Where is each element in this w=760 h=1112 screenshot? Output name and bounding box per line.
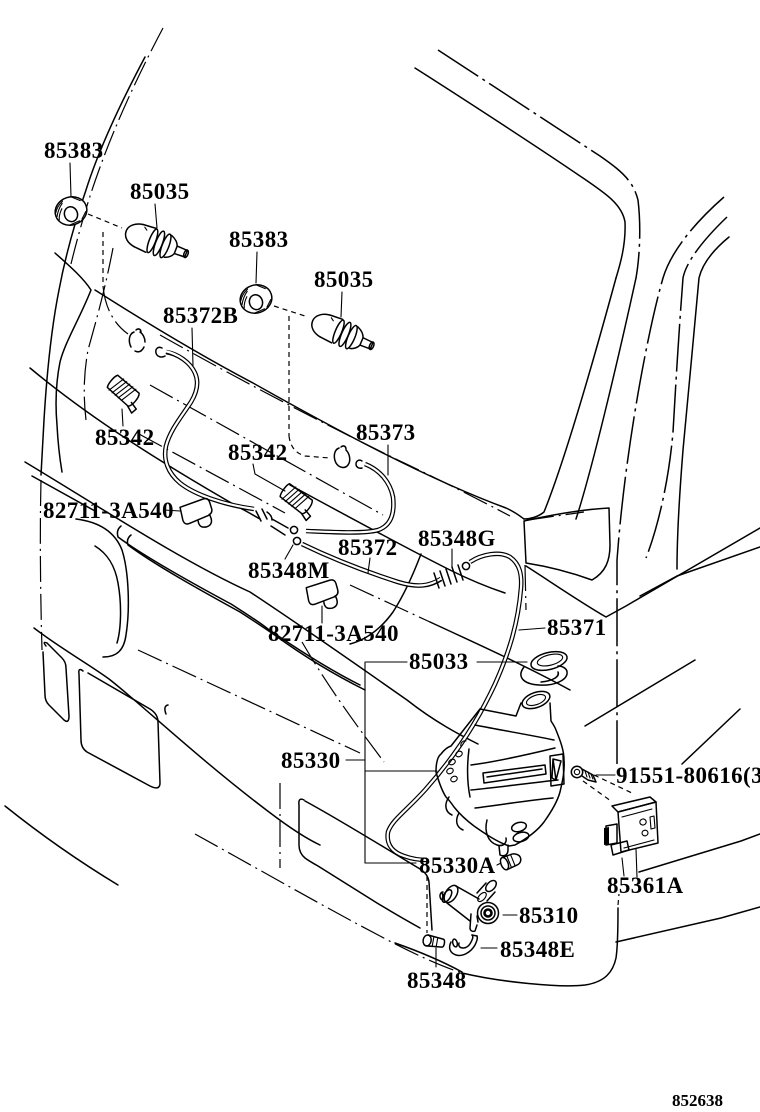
svg-text:91551-80616(3): 91551-80616(3) — [616, 763, 760, 788]
svg-text:85033: 85033 — [409, 649, 469, 674]
svg-text:85383: 85383 — [229, 227, 289, 252]
svg-text:85348: 85348 — [407, 968, 467, 993]
svg-text:85373: 85373 — [356, 420, 416, 445]
svg-text:85035: 85035 — [314, 267, 374, 292]
svg-text:852638: 852638 — [672, 1091, 723, 1110]
svg-text:85348M: 85348M — [248, 558, 330, 583]
svg-text:85330A: 85330A — [419, 853, 496, 878]
svg-text:85371: 85371 — [547, 615, 607, 640]
svg-text:85035: 85035 — [130, 179, 190, 204]
svg-text:85348G: 85348G — [418, 526, 496, 551]
svg-text:85348E: 85348E — [500, 937, 575, 962]
svg-text:85383: 85383 — [44, 138, 104, 163]
svg-text:85342: 85342 — [228, 440, 288, 465]
svg-text:82711-3A540: 82711-3A540 — [268, 621, 399, 646]
svg-text:85330: 85330 — [281, 748, 341, 773]
svg-text:85342: 85342 — [95, 425, 155, 450]
svg-text:85372B: 85372B — [163, 303, 238, 328]
svg-text:85310: 85310 — [519, 903, 579, 928]
svg-text:85361A: 85361A — [607, 873, 684, 898]
svg-text:82711-3A540: 82711-3A540 — [43, 498, 174, 523]
svg-text:85372: 85372 — [338, 535, 398, 560]
